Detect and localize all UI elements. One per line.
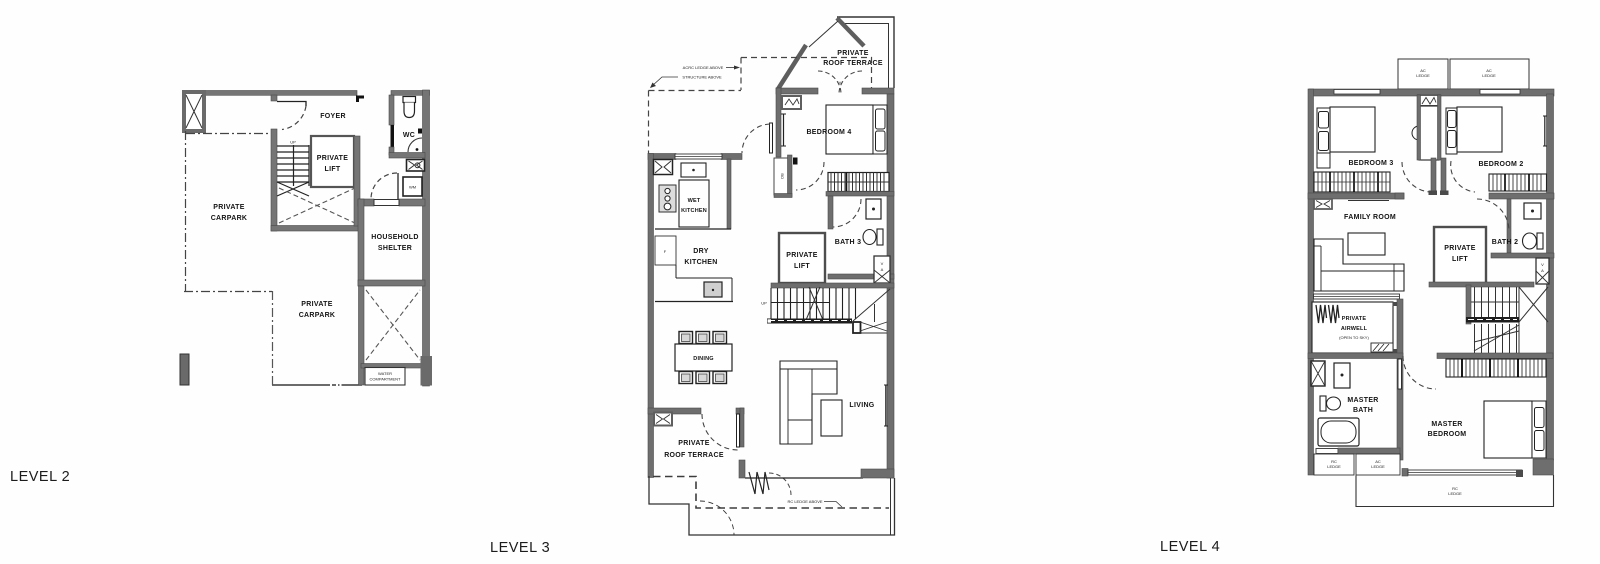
svg-text:ROOF TERRACE: ROOF TERRACE — [664, 452, 724, 459]
svg-text:BATH 3: BATH 3 — [835, 239, 862, 246]
svg-text:RC LEDGE ABOVE: RC LEDGE ABOVE — [787, 499, 822, 504]
svg-text:V: V — [881, 261, 884, 266]
svg-text:LEDGE: LEDGE — [1448, 491, 1462, 496]
svg-text:SHELTER: SHELTER — [378, 245, 412, 252]
svg-text:STRUCTURE ABOVE: STRUCTURE ABOVE — [682, 75, 722, 80]
svg-text:AIRWELL: AIRWELL — [1341, 326, 1368, 332]
svg-text:BEDROOM: BEDROOM — [1428, 431, 1467, 438]
svg-text:LIVING: LIVING — [849, 402, 874, 409]
svg-text:UP: UP — [761, 301, 767, 306]
svg-text:WC: WC — [403, 132, 415, 139]
svg-text:BEDROOM 4: BEDROOM 4 — [806, 129, 851, 136]
svg-text:WM: WM — [409, 185, 416, 190]
svg-text:ACRC LEDGE ABOVE: ACRC LEDGE ABOVE — [683, 65, 724, 70]
svg-text:FOYER: FOYER — [320, 113, 346, 120]
svg-text:PRIVATE: PRIVATE — [317, 155, 348, 162]
svg-text:DINING: DINING — [693, 356, 713, 362]
svg-text:LEVEL 4: LEVEL 4 — [1160, 539, 1220, 555]
svg-text:BATH 2: BATH 2 — [1492, 239, 1519, 246]
svg-text:A: A — [1541, 268, 1544, 273]
svg-text:MASTER: MASTER — [1431, 421, 1462, 428]
svg-text:ROOF TERRACE: ROOF TERRACE — [823, 60, 883, 67]
svg-text:DB: DB — [780, 173, 785, 179]
svg-text:LEDGE: LEDGE — [1416, 73, 1430, 78]
svg-text:DRY: DRY — [693, 248, 708, 255]
svg-text:(OPEN TO SKY): (OPEN TO SKY) — [1339, 335, 1369, 340]
svg-text:PRIVATE: PRIVATE — [678, 440, 709, 447]
svg-text:V: V — [1541, 262, 1544, 267]
svg-text:COMPARTMENT: COMPARTMENT — [370, 377, 402, 382]
svg-text:PRIVATE: PRIVATE — [786, 252, 817, 259]
svg-text:LEVEL 2: LEVEL 2 — [10, 469, 70, 485]
svg-text:LEDGE: LEDGE — [1482, 73, 1496, 78]
svg-text:KITCHEN: KITCHEN — [681, 208, 707, 214]
svg-text:MASTER: MASTER — [1347, 397, 1378, 404]
svg-text:PRIVATE: PRIVATE — [213, 204, 244, 211]
svg-text:LEDGE: LEDGE — [1371, 464, 1385, 469]
svg-text:BATH: BATH — [1353, 407, 1373, 414]
svg-text:PRIVATE: PRIVATE — [1444, 245, 1475, 252]
svg-text:HOUSEHOLD: HOUSEHOLD — [371, 234, 418, 241]
svg-text:FAMILY ROOM: FAMILY ROOM — [1344, 214, 1396, 221]
svg-text:CARPARK: CARPARK — [299, 312, 336, 319]
svg-text:CARPARK: CARPARK — [211, 215, 248, 222]
svg-text:WATER: WATER — [378, 371, 392, 376]
svg-text:BEDROOM 3: BEDROOM 3 — [1348, 160, 1393, 167]
svg-text:PRIVATE: PRIVATE — [301, 301, 332, 308]
svg-text:LEVEL 3: LEVEL 3 — [490, 540, 550, 556]
svg-text:BEDROOM 2: BEDROOM 2 — [1478, 161, 1523, 168]
svg-text:LIFT: LIFT — [1452, 256, 1468, 263]
svg-text:PRIVATE: PRIVATE — [837, 50, 868, 57]
svg-text:LIFT: LIFT — [794, 263, 810, 270]
svg-text:LEDGE: LEDGE — [1327, 464, 1341, 469]
svg-text:A: A — [881, 267, 884, 272]
svg-text:KITCHEN: KITCHEN — [684, 259, 717, 266]
svg-text:PRIVATE: PRIVATE — [1342, 316, 1367, 322]
svg-text:V: V — [839, 80, 842, 85]
svg-text:WET: WET — [688, 198, 701, 204]
svg-text:UP: UP — [290, 140, 296, 145]
svg-text:LIFT: LIFT — [325, 166, 341, 173]
